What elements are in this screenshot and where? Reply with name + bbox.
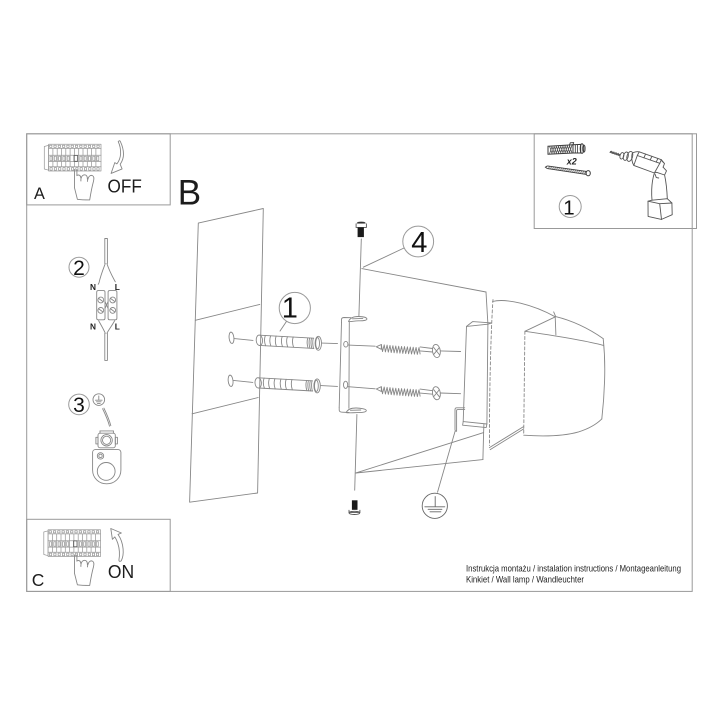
svg-text:OFF: OFF [108,176,142,197]
svg-text:A: A [34,185,45,203]
svg-text:L: L [115,321,120,331]
svg-text:1: 1 [563,196,574,219]
svg-text:3: 3 [73,394,85,417]
svg-text:Kinkiet / Wall lamp / Wandleuc: Kinkiet / Wall lamp / Wandleuchter [466,575,584,585]
svg-text:4: 4 [411,227,427,259]
svg-text:1: 1 [282,293,298,325]
svg-text:2: 2 [73,257,85,280]
svg-text:B: B [178,173,201,212]
svg-text:C: C [32,570,45,590]
svg-text:Instrukcja montażu / instalati: Instrukcja montażu / instalation instruc… [466,563,681,573]
svg-text:N: N [90,321,96,331]
svg-text:N: N [90,282,96,292]
svg-text:ON: ON [108,561,134,582]
svg-text:x2: x2 [566,157,577,167]
